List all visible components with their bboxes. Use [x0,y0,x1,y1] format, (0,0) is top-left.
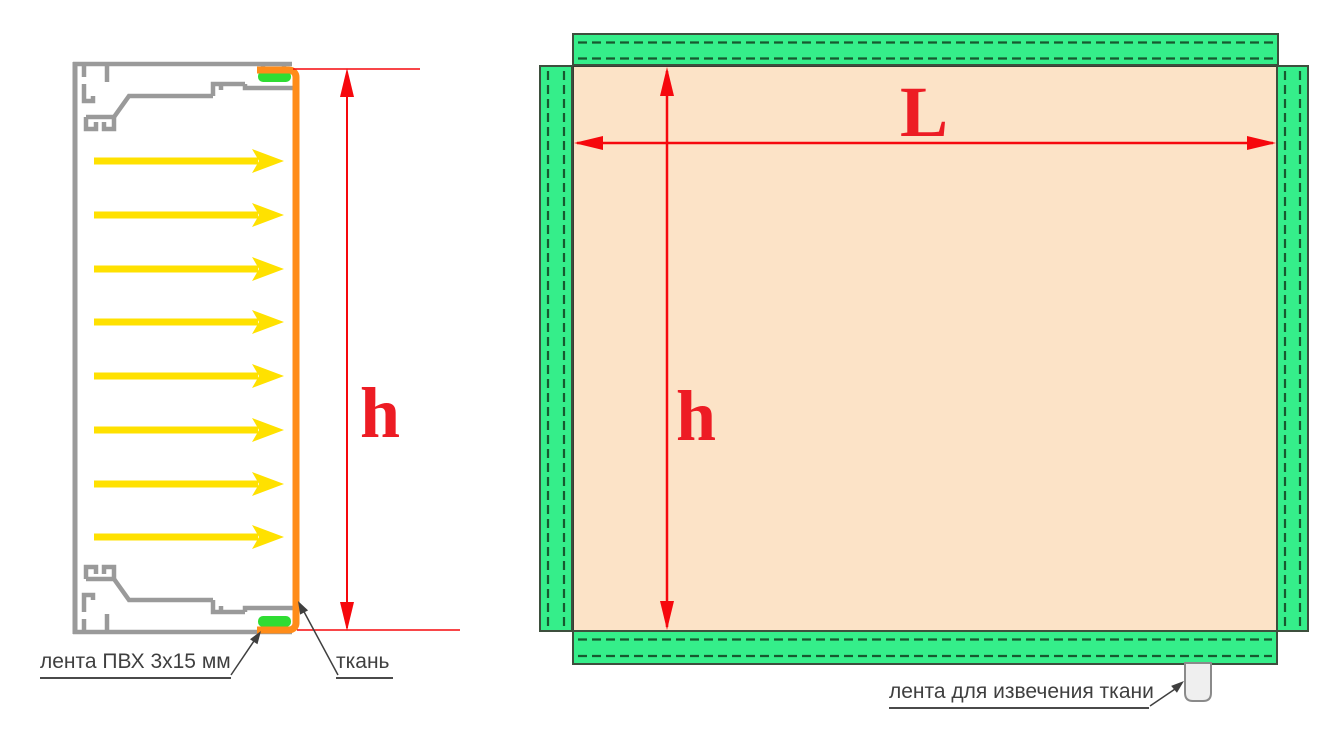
fabric-tension-arrows [94,149,284,549]
pvc-tape-bottom [258,616,291,627]
edge-strip-right [1277,66,1308,631]
edge-strip-bottom [573,631,1277,664]
height-dim-letter-left: h [360,377,400,449]
edge-strip-left [540,66,572,631]
callout-leader-right [1150,678,1187,706]
height-dim-letter-right: h [676,380,716,452]
profile-section-view [73,62,460,675]
pull-tab [1185,663,1211,701]
pvc-tape-callout: лента ПВХ 3x15 мм [40,650,231,679]
technical-drawing [0,0,1343,736]
width-dim-letter: L [900,76,948,148]
edge-strip-top [573,34,1278,65]
fabric-callout: ткань [336,650,393,679]
diagram-canvas: лента ПВХ 3x15 мм ткань лента для извече… [0,0,1343,736]
pull-tape-callout: лента для извечения ткани [889,680,1149,709]
height-dimension-left [293,68,460,631]
